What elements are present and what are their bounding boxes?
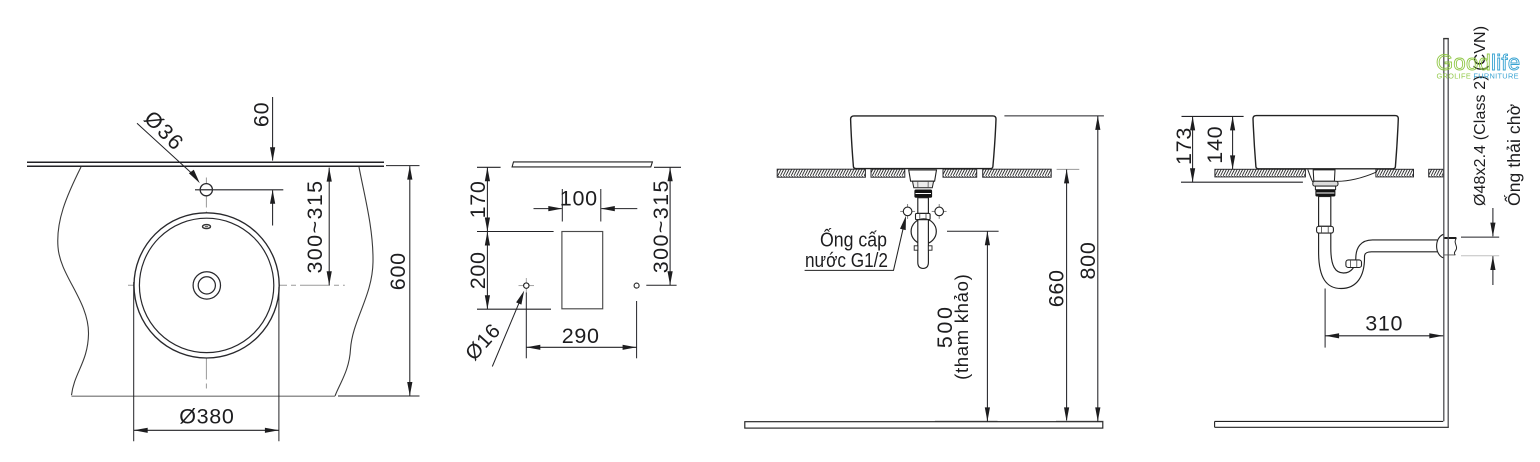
svg-text:GROLIFE FURNITURE: GROLIFE FURNITURE <box>1437 72 1519 81</box>
svg-text:300~315: 300~315 <box>649 179 673 273</box>
svg-text:800: 800 <box>1076 242 1100 280</box>
svg-text:310: 310 <box>1365 311 1403 335</box>
svg-text:660: 660 <box>1044 269 1068 307</box>
svg-text:Ø380: Ø380 <box>179 405 234 429</box>
svg-text:200: 200 <box>466 251 490 289</box>
svg-text:60: 60 <box>250 102 274 127</box>
svg-text:Ống cấp: Ống cấp <box>820 228 887 252</box>
svg-text:600: 600 <box>386 252 410 290</box>
svg-text:140: 140 <box>1203 126 1227 164</box>
svg-text:290: 290 <box>562 324 600 348</box>
svg-text:170: 170 <box>466 180 490 218</box>
svg-text:300~315: 300~315 <box>303 179 327 273</box>
svg-text:173: 173 <box>1172 127 1196 165</box>
svg-text:nước G1/2: nước G1/2 <box>805 250 888 272</box>
svg-text:100: 100 <box>560 187 598 211</box>
svg-text:Ống thải chờ: Ống thải chờ <box>1503 104 1524 206</box>
svg-text:(tham khảo): (tham khảo) <box>951 273 972 379</box>
